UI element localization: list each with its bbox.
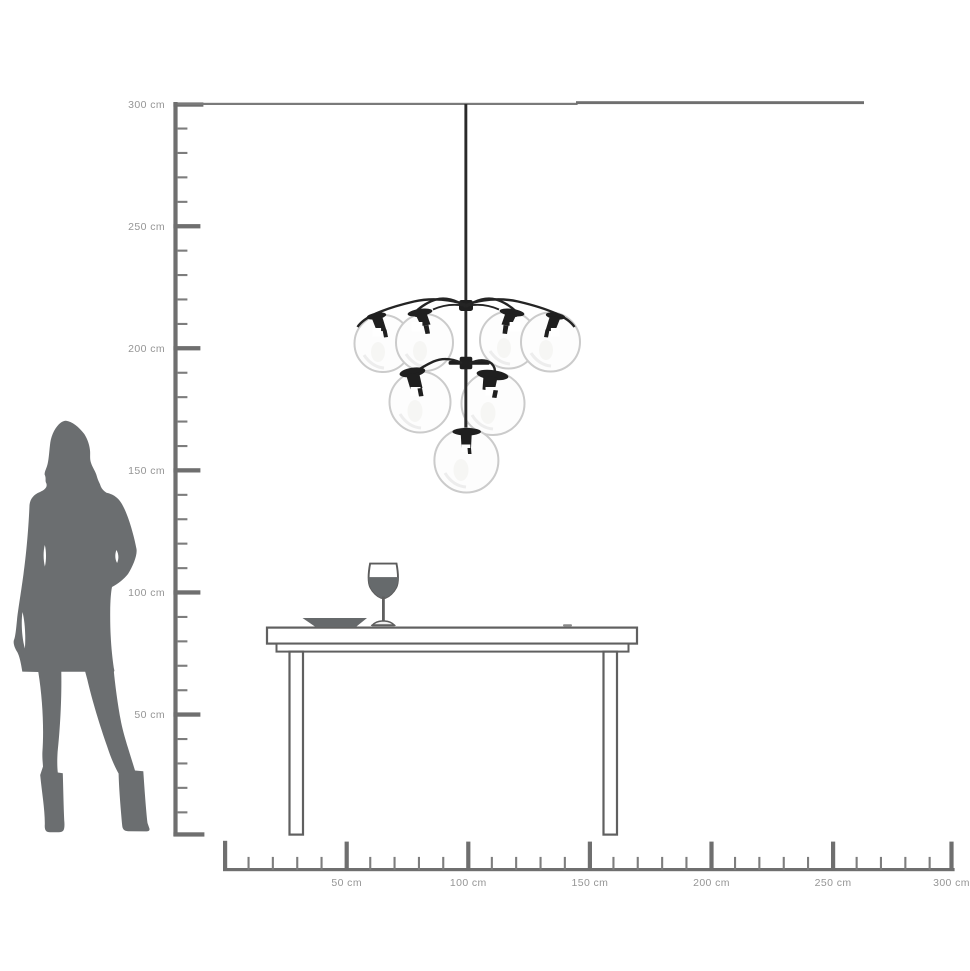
svg-text:100 cm: 100 cm xyxy=(450,877,487,889)
svg-text:50 cm: 50 cm xyxy=(134,709,165,721)
svg-text:300 cm: 300 cm xyxy=(933,877,970,889)
svg-text:100 cm: 100 cm xyxy=(128,587,165,599)
svg-text:300 cm: 300 cm xyxy=(128,99,165,111)
svg-text:250 cm: 250 cm xyxy=(815,877,852,889)
svg-text:200 cm: 200 cm xyxy=(693,877,730,889)
svg-text:150 cm: 150 cm xyxy=(571,877,608,889)
svg-text:50 cm: 50 cm xyxy=(331,877,362,889)
svg-text:250 cm: 250 cm xyxy=(128,221,165,233)
svg-text:200 cm: 200 cm xyxy=(128,343,165,355)
svg-text:150 cm: 150 cm xyxy=(128,465,165,477)
